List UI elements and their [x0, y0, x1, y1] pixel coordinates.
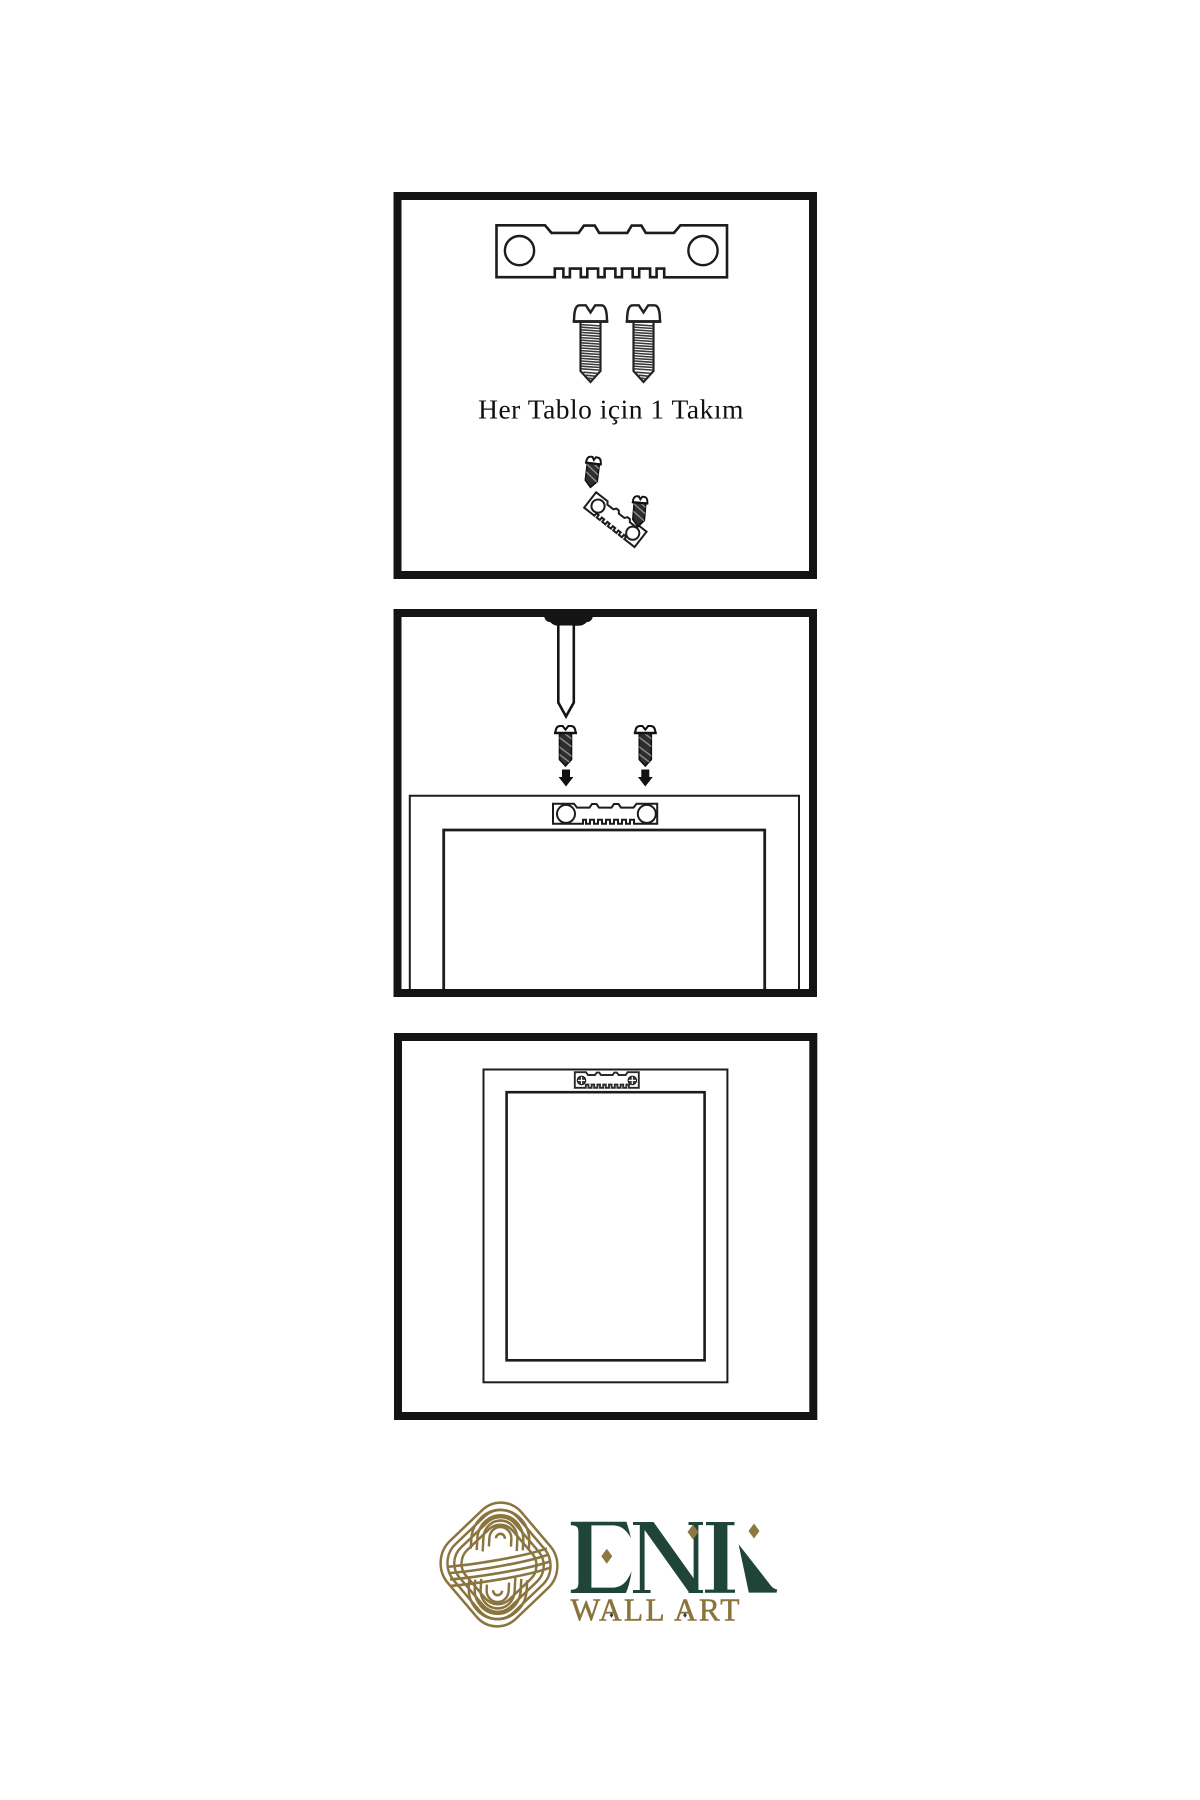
- svg-text:WALL ART: WALL ART: [571, 1593, 742, 1628]
- svg-text:Her Tablo için 1 Takım: Her Tablo için 1 Takım: [478, 394, 744, 425]
